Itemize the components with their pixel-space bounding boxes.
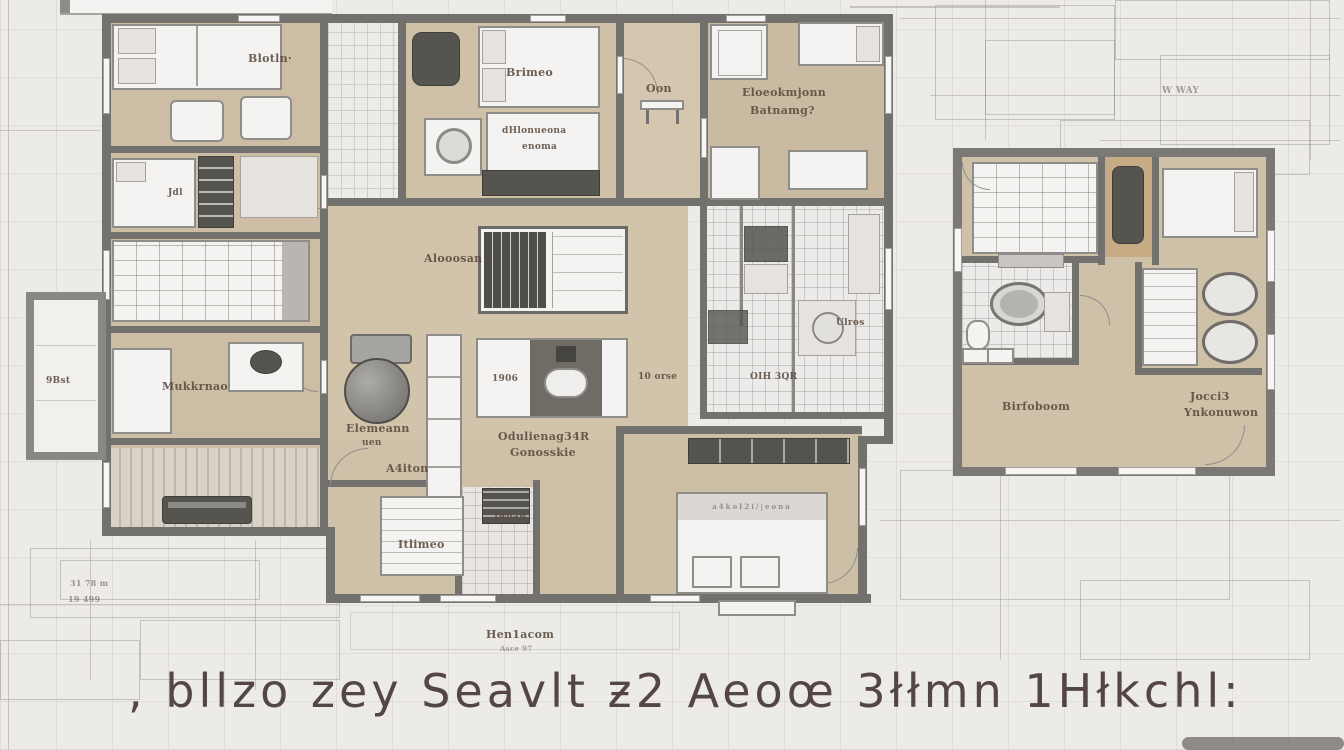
room-label-rp-bedroom: Birfoboom xyxy=(1002,400,1070,413)
wall xyxy=(1072,262,1079,362)
sketch-rect xyxy=(1080,580,1310,660)
pillow xyxy=(118,58,156,84)
room-label-oih: OIH 3QR xyxy=(750,372,797,382)
wall xyxy=(616,426,624,596)
closet-inner xyxy=(718,30,762,76)
console-table xyxy=(640,100,684,110)
wall xyxy=(1135,262,1142,372)
sketch-line xyxy=(1000,470,1001,660)
bed-headboard: a4koI2i/|eona xyxy=(678,494,826,520)
desk-note-2: enoma xyxy=(522,142,557,152)
window xyxy=(360,595,420,602)
wardrobe-dark-section xyxy=(484,232,546,308)
bed-bench xyxy=(998,254,1064,268)
dresser xyxy=(198,156,234,228)
room-label-oon: Oon xyxy=(646,82,672,95)
window xyxy=(103,58,110,114)
bed xyxy=(972,162,1098,254)
window xyxy=(440,595,496,602)
wardrobe-shelf xyxy=(552,232,623,308)
wall xyxy=(740,206,743,326)
armchair xyxy=(170,100,224,142)
top-band xyxy=(60,0,332,15)
floor-courtyard xyxy=(328,20,404,202)
wall xyxy=(102,527,334,536)
window xyxy=(1267,230,1275,282)
pillow xyxy=(116,162,146,182)
appliance xyxy=(744,226,788,262)
door-gap xyxy=(701,118,707,158)
window xyxy=(885,248,892,310)
stove xyxy=(708,310,748,344)
ottoman xyxy=(692,556,732,588)
wall xyxy=(1152,157,1159,265)
room-label-ulros: Ulros xyxy=(836,318,865,328)
washer-door xyxy=(436,128,472,164)
room-label-mukk: Mukkrnao xyxy=(162,380,228,393)
below-label-1: Hen1acom xyxy=(486,628,554,641)
hall-label-2: Gonosskie xyxy=(510,446,576,459)
wall xyxy=(1135,368,1262,375)
closet-line xyxy=(36,345,96,346)
pillow xyxy=(482,68,506,102)
armchair xyxy=(412,32,460,86)
floor-entry xyxy=(616,20,708,202)
toilet xyxy=(966,320,990,350)
cabinet-divider xyxy=(428,466,460,468)
window xyxy=(859,468,866,526)
sketch-rect xyxy=(1115,0,1330,60)
plan-title: , bllzo zey Seavlt ƶ2 Aeoœ 3łłmn 1Hłkchl… xyxy=(128,664,1344,718)
room-label-iwoaw: Iwoaw xyxy=(494,512,527,522)
sketch-line xyxy=(0,130,100,131)
wall xyxy=(326,198,893,206)
window xyxy=(885,56,892,114)
table-leg xyxy=(676,110,679,124)
media-console xyxy=(688,438,850,464)
room-label-rp-kids-1: Jocci3 xyxy=(1190,390,1230,403)
wall xyxy=(700,206,707,418)
area-note: 10 orse xyxy=(638,372,677,382)
bottom-right-bar xyxy=(1182,737,1344,750)
window xyxy=(726,15,766,22)
sketch-line xyxy=(880,520,1340,521)
room-label-a4ton: A4iton xyxy=(386,462,429,475)
sketch-rect xyxy=(0,640,140,700)
bed xyxy=(788,150,868,190)
table-label-2: uen xyxy=(362,438,382,448)
cabinet-divider xyxy=(428,376,460,378)
sink xyxy=(812,312,844,344)
sketch-line xyxy=(930,95,1340,96)
shelf xyxy=(482,170,600,196)
window xyxy=(954,228,962,272)
wall xyxy=(326,527,335,603)
room-label-rp-kids-2: Ynkonuwon xyxy=(1184,406,1258,419)
sketch-line xyxy=(985,0,986,140)
window xyxy=(238,15,280,22)
deck-machine-band xyxy=(168,502,246,508)
window xyxy=(530,15,566,22)
wall xyxy=(700,14,708,206)
wardrobe-figure xyxy=(1112,166,1144,244)
wall xyxy=(102,14,892,23)
closet-label: 9Bst xyxy=(46,376,70,386)
window xyxy=(1267,334,1275,390)
appliance xyxy=(744,264,788,294)
wall xyxy=(398,14,406,206)
window xyxy=(650,595,700,602)
cabinet xyxy=(710,146,760,200)
wall xyxy=(622,426,862,434)
table-leg xyxy=(646,110,649,124)
sink-divider xyxy=(987,350,989,362)
sketch-note: 19 499 xyxy=(68,594,100,604)
room-label-brimeo: Brimeo xyxy=(506,66,553,79)
pillow xyxy=(482,30,506,64)
wall xyxy=(108,326,320,333)
sketch-note: W WAY xyxy=(1162,86,1199,96)
wall xyxy=(108,232,320,239)
desk xyxy=(240,156,318,218)
ottoman xyxy=(740,556,780,588)
floorplan-canvas: W WAY 31 78 m 19 499 xyxy=(0,0,1344,750)
bench xyxy=(718,600,796,616)
sketch-line xyxy=(900,18,1340,19)
cabinet-number: 1906 xyxy=(492,374,518,384)
window xyxy=(103,462,110,508)
room-label-jdl: Jdl xyxy=(168,188,183,198)
wall xyxy=(700,412,890,419)
bath-shelf xyxy=(1044,292,1070,332)
room-label-itlimeo: Itlimeo xyxy=(398,538,445,551)
hall-label-1: Odulienag34R xyxy=(498,430,590,443)
bathtub-inner xyxy=(1000,290,1038,318)
wall xyxy=(108,438,326,445)
armchair xyxy=(240,96,292,140)
wall xyxy=(1098,157,1105,265)
sketch-line xyxy=(1100,140,1340,141)
table-label-1: Elemeann xyxy=(346,422,410,435)
kid-bed xyxy=(1202,320,1258,364)
bunk-unit xyxy=(1142,268,1198,366)
stove-square xyxy=(556,346,576,362)
sink-oval xyxy=(544,368,588,398)
pillow xyxy=(856,26,880,62)
sketch-note: 31 78 m xyxy=(70,578,108,588)
room-label-tr-2: Batnamg? xyxy=(750,104,815,117)
wall xyxy=(320,14,328,536)
pillow xyxy=(1234,172,1254,232)
sketch-line xyxy=(1310,0,1311,160)
sketch-rect xyxy=(985,40,1115,115)
below-label-2: Asce 97 xyxy=(500,644,532,653)
room-label-tr-1: Eloeokmjonn xyxy=(742,86,826,99)
dining-table xyxy=(344,358,410,424)
deck-machine xyxy=(162,496,252,524)
closet-line xyxy=(36,400,96,401)
door-gap xyxy=(321,360,327,394)
window xyxy=(1005,467,1077,475)
wall xyxy=(108,146,320,153)
desk-note-1: dHlonueona xyxy=(502,126,566,136)
top-band-dark xyxy=(60,0,70,13)
pillow xyxy=(118,28,156,54)
bed xyxy=(380,496,464,576)
bed-divider xyxy=(196,26,198,86)
sketch-line xyxy=(8,0,9,750)
headboard xyxy=(282,242,308,320)
window xyxy=(1118,467,1196,475)
bed-garbled-text: a4koI2i/|eona xyxy=(678,494,826,520)
sketch-line xyxy=(850,6,1060,8)
cabinet-divider xyxy=(428,418,460,420)
tall-cabinet xyxy=(426,334,462,522)
counter xyxy=(848,214,880,294)
kid-bed xyxy=(1202,272,1258,316)
room-label-living: Alooosan xyxy=(424,252,482,265)
room-label-bedroom-tl: Blotln· xyxy=(248,52,292,65)
sketch-line xyxy=(0,604,340,605)
basin xyxy=(250,350,282,374)
sketch-line xyxy=(90,540,91,680)
wall xyxy=(616,14,624,206)
wall xyxy=(533,480,540,600)
bed xyxy=(112,240,310,322)
